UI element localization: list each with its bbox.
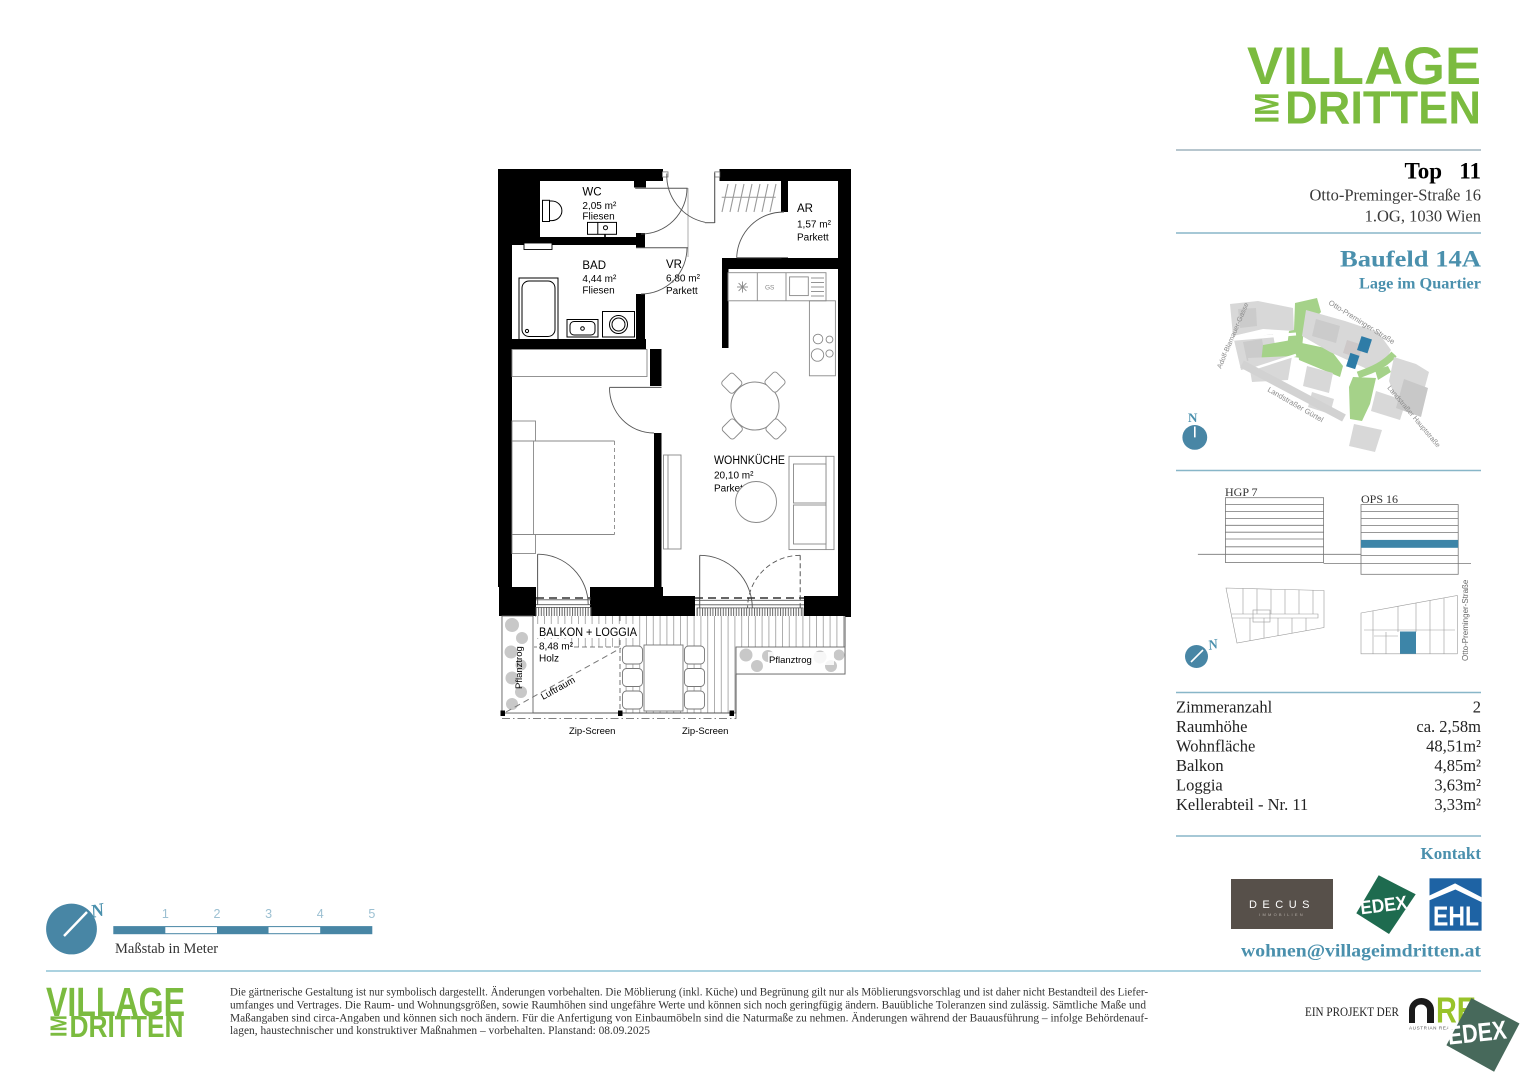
svg-text:Kontakt: Kontakt [1421, 844, 1482, 863]
svg-text:DECUS: DECUS [1249, 899, 1315, 911]
svg-text:Balkon: Balkon [1176, 756, 1224, 775]
svg-text:IM: IM [1249, 93, 1287, 124]
svg-text:Maßstab in Meter: Maßstab in Meter [115, 941, 218, 957]
svg-text:1,57 m²: 1,57 m² [797, 220, 832, 231]
svg-text:48,51m²: 48,51m² [1426, 737, 1481, 756]
svg-text:WOHNKÜCHE: WOHNKÜCHE [714, 455, 785, 467]
svg-text:Wohnfläche: Wohnfläche [1176, 737, 1255, 756]
svg-text:HGP 7: HGP 7 [1225, 485, 1258, 499]
svg-text:EIN PROJEKT DER: EIN PROJEKT DER [1305, 1005, 1400, 1019]
svg-text:1: 1 [162, 907, 169, 921]
svg-text:1.OG, 1030 Wien: 1.OG, 1030 Wien [1365, 207, 1481, 226]
svg-text:wohnen@villageimdritten.at: wohnen@villageimdritten.at [1241, 941, 1481, 961]
svg-text:Top 11: Top 11 [1404, 159, 1481, 184]
svg-text:4,44 m²: 4,44 m² [582, 274, 617, 285]
svg-text:ca. 2,58m: ca. 2,58m [1416, 717, 1481, 736]
svg-text:GS: GS [765, 285, 775, 292]
svg-text:2: 2 [214, 907, 221, 921]
svg-text:BAD: BAD [582, 260, 606, 272]
svg-text:AR: AR [797, 203, 813, 215]
svg-text:Loggia: Loggia [1176, 776, 1223, 795]
svg-text:N: N [1188, 410, 1198, 425]
svg-text:Parkett: Parkett [666, 286, 698, 297]
svg-text:Otto-Preminger-Straße 16: Otto-Preminger-Straße 16 [1309, 186, 1481, 205]
svg-text:IM: IM [46, 1015, 72, 1037]
svg-text:OPS 16: OPS 16 [1361, 492, 1398, 506]
svg-text:BALKON + LOGGIA: BALKON + LOGGIA [539, 627, 637, 639]
svg-text:Raumhöhe: Raumhöhe [1176, 717, 1248, 736]
svg-text:2: 2 [1473, 698, 1481, 717]
svg-text:Pflanztrog: Pflanztrog [514, 646, 525, 689]
svg-text:20,10 m²: 20,10 m² [714, 471, 754, 482]
svg-text:WC: WC [582, 187, 601, 199]
svg-text:Fliesen: Fliesen [582, 286, 614, 297]
svg-text:DRITTEN: DRITTEN [1285, 82, 1481, 134]
svg-text:Pflanztrog: Pflanztrog [769, 655, 812, 666]
svg-text:Holz: Holz [539, 654, 559, 665]
svg-text:3,33m²: 3,33m² [1434, 795, 1481, 814]
svg-text:Otto-Preminger-Straße: Otto-Preminger-Straße [1461, 579, 1470, 661]
svg-text:Fliesen: Fliesen [582, 212, 614, 223]
svg-text:Parkett: Parkett [797, 233, 829, 244]
svg-text:8,48 m²: 8,48 m² [539, 642, 574, 653]
svg-text:VR: VR [666, 259, 682, 271]
svg-text:Maßangaben sind circa-Angaben: Maßangaben sind circa-Angaben und können… [230, 1010, 1148, 1024]
svg-text:Zip-Screen: Zip-Screen [682, 726, 728, 737]
svg-text:DRITTEN: DRITTEN [70, 1009, 184, 1044]
svg-text:lagen, haustechnischer und kon: lagen, haustechnischer und konstruktiver… [230, 1023, 650, 1037]
svg-text:3,63m²: 3,63m² [1434, 776, 1481, 795]
svg-text:Zimmeranzahl: Zimmeranzahl [1176, 698, 1273, 717]
svg-text:4: 4 [317, 907, 324, 921]
svg-text:Baufeld 14A: Baufeld 14A [1340, 247, 1481, 273]
svg-text:Die gärtnerische Gestaltung is: Die gärtnerische Gestaltung ist nur symb… [230, 985, 1148, 999]
svg-text:5: 5 [368, 907, 375, 921]
svg-text:Lage im Quartier: Lage im Quartier [1359, 276, 1481, 293]
svg-text:Zip-Screen: Zip-Screen [569, 726, 615, 737]
svg-text:umfanges und Vertrages. Die Ra: umfanges und Vertrages. Die Raum- und Wo… [230, 997, 1146, 1011]
svg-text:EDEX: EDEX [1446, 1014, 1508, 1050]
svg-text:IMMOBILIEN: IMMOBILIEN [1259, 912, 1305, 917]
svg-text:3: 3 [265, 907, 272, 921]
svg-text:Kellerabteil - Nr. 11: Kellerabteil - Nr. 11 [1176, 795, 1308, 814]
svg-text:2,05 m²: 2,05 m² [582, 201, 617, 212]
svg-text:EHL: EHL [1433, 901, 1479, 932]
svg-text:4,85m²: 4,85m² [1434, 756, 1481, 775]
